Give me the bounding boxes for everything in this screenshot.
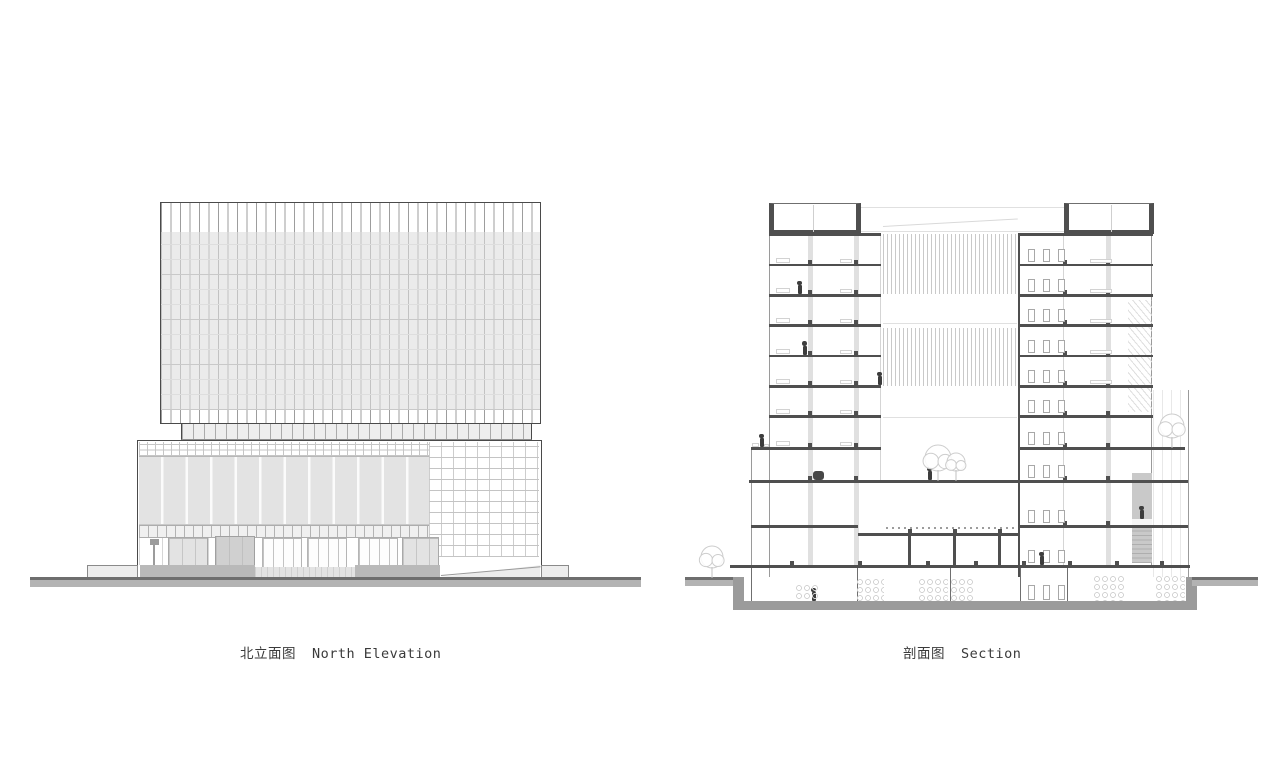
stub: [854, 381, 858, 385]
furn: [840, 289, 852, 293]
slab: [1018, 233, 1153, 236]
stub: [854, 411, 858, 415]
win: [1043, 432, 1050, 445]
win: [1043, 550, 1050, 563]
stub: [854, 260, 858, 264]
section-caption: 剖面图Section: [903, 642, 1021, 662]
furn: [776, 349, 790, 354]
slab: [730, 565, 1190, 568]
furn: [776, 441, 790, 446]
col: [953, 535, 956, 565]
win: [1058, 510, 1065, 523]
strip: [854, 233, 859, 565]
roof-mull: [1111, 205, 1112, 232]
slab: [1018, 355, 1153, 358]
win: [1043, 279, 1050, 292]
slab: [749, 480, 1018, 483]
hatchv: [883, 328, 1017, 386]
stepband: [181, 424, 532, 440]
stub: [998, 529, 1002, 533]
stub: [908, 529, 912, 533]
win: [1058, 550, 1065, 563]
furn: [1090, 259, 1112, 263]
stub: [1106, 411, 1110, 415]
stub: [808, 320, 812, 324]
sill-dark: [355, 565, 440, 577]
stub: [790, 561, 794, 565]
furn: [1090, 319, 1112, 323]
win: [1043, 400, 1050, 413]
elevation-caption-en: North Elevation: [312, 646, 441, 662]
slope: [883, 218, 1018, 227]
win: [1028, 550, 1035, 563]
tree-icon: [942, 450, 970, 482]
win: [1028, 510, 1035, 523]
furn: [1090, 350, 1112, 354]
line-h-faint: [883, 417, 1017, 418]
stub: [1115, 561, 1119, 565]
furn: [776, 379, 790, 384]
person-silhouette: [803, 346, 807, 355]
pd-panels: [139, 457, 429, 525]
stub: [1106, 443, 1110, 447]
person-silhouette: [798, 285, 802, 294]
drawing-canvas: 北立面图North Elevation 剖面图Section: [0, 0, 1280, 777]
slab: [769, 415, 881, 418]
win: [1028, 432, 1035, 445]
win: [1058, 400, 1065, 413]
stub: [854, 443, 858, 447]
rack: [856, 578, 884, 601]
stub: [1160, 561, 1164, 565]
pd-row1: [139, 442, 429, 457]
win: [1043, 309, 1050, 322]
win: [1043, 249, 1050, 262]
win: [1058, 249, 1065, 262]
furn: [776, 258, 790, 263]
win: [1028, 279, 1035, 292]
win: [1028, 309, 1035, 322]
line-h-faint: [883, 323, 1017, 324]
slab: [858, 533, 1018, 536]
dash: [886, 527, 1016, 529]
col: [908, 535, 911, 565]
stub: [854, 320, 858, 324]
col: [998, 535, 1001, 565]
pd-brick: [429, 442, 539, 557]
plinth-r: [541, 565, 569, 577]
furn: [1090, 289, 1112, 293]
slab: [1018, 480, 1188, 483]
roofbox: [769, 203, 861, 234]
blob: [813, 471, 824, 480]
bwall: [1020, 568, 1021, 601]
stub: [854, 351, 858, 355]
stub: [1106, 476, 1110, 480]
win: [1043, 370, 1050, 383]
slab: [769, 294, 881, 297]
win: [1043, 585, 1050, 600]
stairlines: [1132, 527, 1152, 563]
stub: [974, 561, 978, 565]
rack: [795, 584, 819, 601]
strip: [1106, 233, 1111, 565]
win: [1043, 340, 1050, 353]
win: [1058, 309, 1065, 322]
furn: [840, 380, 852, 384]
slab: [769, 324, 881, 327]
flag: [150, 539, 159, 545]
furn: [840, 319, 852, 323]
stub: [808, 381, 812, 385]
tw-mid: [161, 232, 540, 410]
stub: [858, 561, 862, 565]
win: [1043, 465, 1050, 478]
win: [1043, 510, 1050, 523]
person-silhouette: [1140, 510, 1144, 519]
person-silhouette: [878, 376, 882, 385]
rack: [1093, 575, 1125, 601]
roof-mull: [813, 205, 814, 232]
win: [1028, 465, 1035, 478]
slab: [751, 525, 858, 528]
stub: [1106, 521, 1110, 525]
tw-bot: [161, 410, 540, 423]
furn: [840, 259, 852, 263]
sill-dark: [140, 565, 255, 577]
person-silhouette: [1040, 556, 1044, 565]
stub: [926, 561, 930, 565]
win: [1058, 279, 1065, 292]
slab: [1018, 264, 1153, 267]
tree-icon: [1155, 411, 1189, 449]
slab: [751, 447, 881, 450]
line-h-faint: [861, 207, 1064, 208]
stub: [854, 476, 858, 480]
flagpost: [153, 540, 155, 567]
stub: [953, 529, 957, 533]
bwall: [1067, 568, 1068, 601]
rack: [950, 578, 974, 601]
slab: [769, 385, 881, 388]
rack: [918, 578, 948, 601]
elevation-caption-zh: 北立面图: [240, 646, 296, 662]
win: [1028, 370, 1035, 383]
furn: [1090, 380, 1112, 384]
win: [1028, 585, 1035, 600]
slab: [1018, 294, 1153, 297]
furn: [840, 442, 852, 446]
section-caption-zh: 剖面图: [903, 646, 945, 662]
win: [1028, 249, 1035, 262]
person-silhouette: [760, 438, 764, 447]
plinth-l: [87, 565, 138, 577]
stub: [808, 260, 812, 264]
win: [1058, 465, 1065, 478]
win: [1058, 340, 1065, 353]
ground-el: [30, 577, 641, 587]
stub: [808, 290, 812, 294]
rack: [1155, 575, 1185, 601]
roofbox: [1064, 203, 1154, 234]
baseband: [733, 601, 1195, 610]
furn: [776, 409, 790, 414]
stub: [1022, 561, 1026, 565]
slab: [1018, 324, 1153, 327]
edge-thin: [751, 447, 752, 577]
slab: [1018, 385, 1153, 388]
win: [1058, 432, 1065, 445]
section-caption-en: Section: [961, 646, 1021, 662]
win: [1028, 400, 1035, 413]
stub: [1068, 561, 1072, 565]
hatchv: [883, 234, 1017, 294]
elevation-caption: 北立面图North Elevation: [240, 642, 441, 662]
ground-el: [1192, 577, 1258, 586]
slab: [1018, 415, 1153, 418]
furn: [776, 318, 790, 323]
furn: [840, 350, 852, 354]
furn: [840, 410, 852, 414]
tree-icon: [696, 543, 728, 579]
win: [1058, 370, 1065, 383]
bwall: [751, 568, 752, 601]
sill-light: [255, 567, 355, 577]
strip: [808, 233, 813, 565]
stub: [808, 476, 812, 480]
slab: [769, 233, 881, 236]
tw-top: [161, 203, 540, 232]
stub: [854, 290, 858, 294]
stub: [808, 351, 812, 355]
win: [1028, 340, 1035, 353]
stub: [808, 443, 812, 447]
stub: [808, 411, 812, 415]
slab: [1018, 525, 1188, 528]
slab: [769, 355, 881, 358]
line-h-faint: [861, 231, 1064, 232]
slab: [769, 264, 881, 267]
win: [1058, 585, 1065, 600]
furn: [776, 288, 790, 293]
